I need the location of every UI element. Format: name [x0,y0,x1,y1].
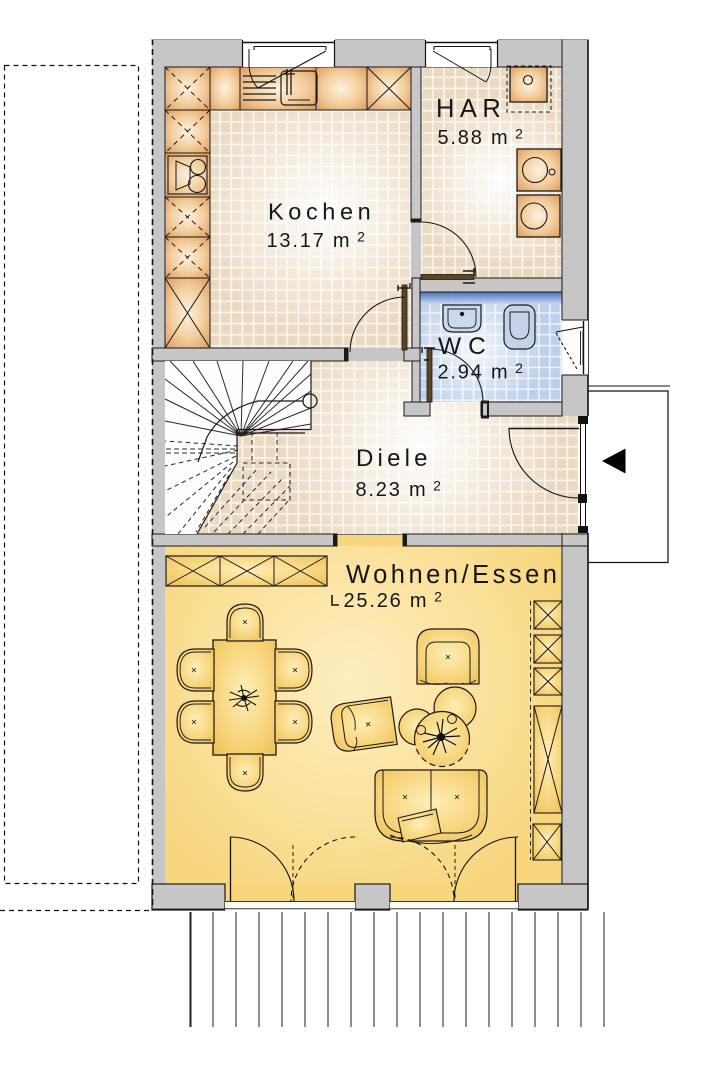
svg-text:Wohnen/Essen: Wohnen/Essen [346,561,560,589]
svg-text:Kochen: Kochen [268,199,375,225]
svg-text:HAR: HAR [436,95,506,123]
svg-text:WC: WC [438,333,493,360]
svg-text:Diele: Diele [356,445,432,472]
